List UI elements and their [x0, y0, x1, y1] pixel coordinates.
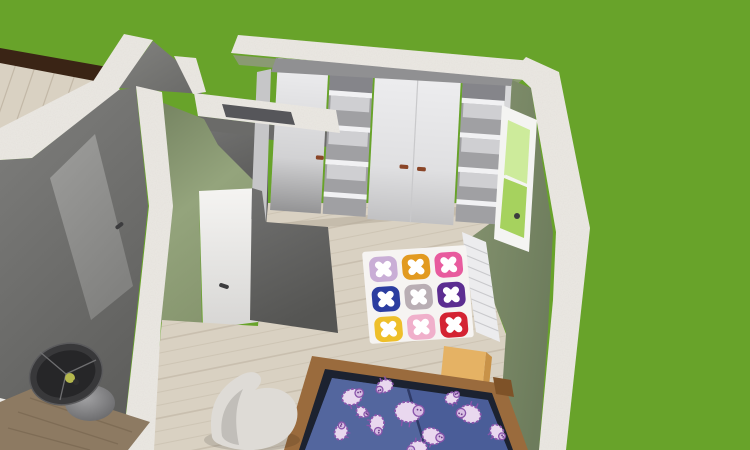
wardrobe-shelves-left: [323, 62, 374, 217]
window-handle-icon: [514, 213, 520, 219]
wardrobe-handle-icon: [316, 155, 324, 160]
wardrobe-handle-icon: [417, 167, 426, 172]
rug[interactable]: [362, 245, 474, 344]
room-3d-view[interactable]: [0, 0, 750, 450]
wardrobe-handle-icon: [399, 164, 408, 169]
wardrobe[interactable]: [251, 58, 514, 229]
bed-corner-post: [493, 377, 514, 397]
